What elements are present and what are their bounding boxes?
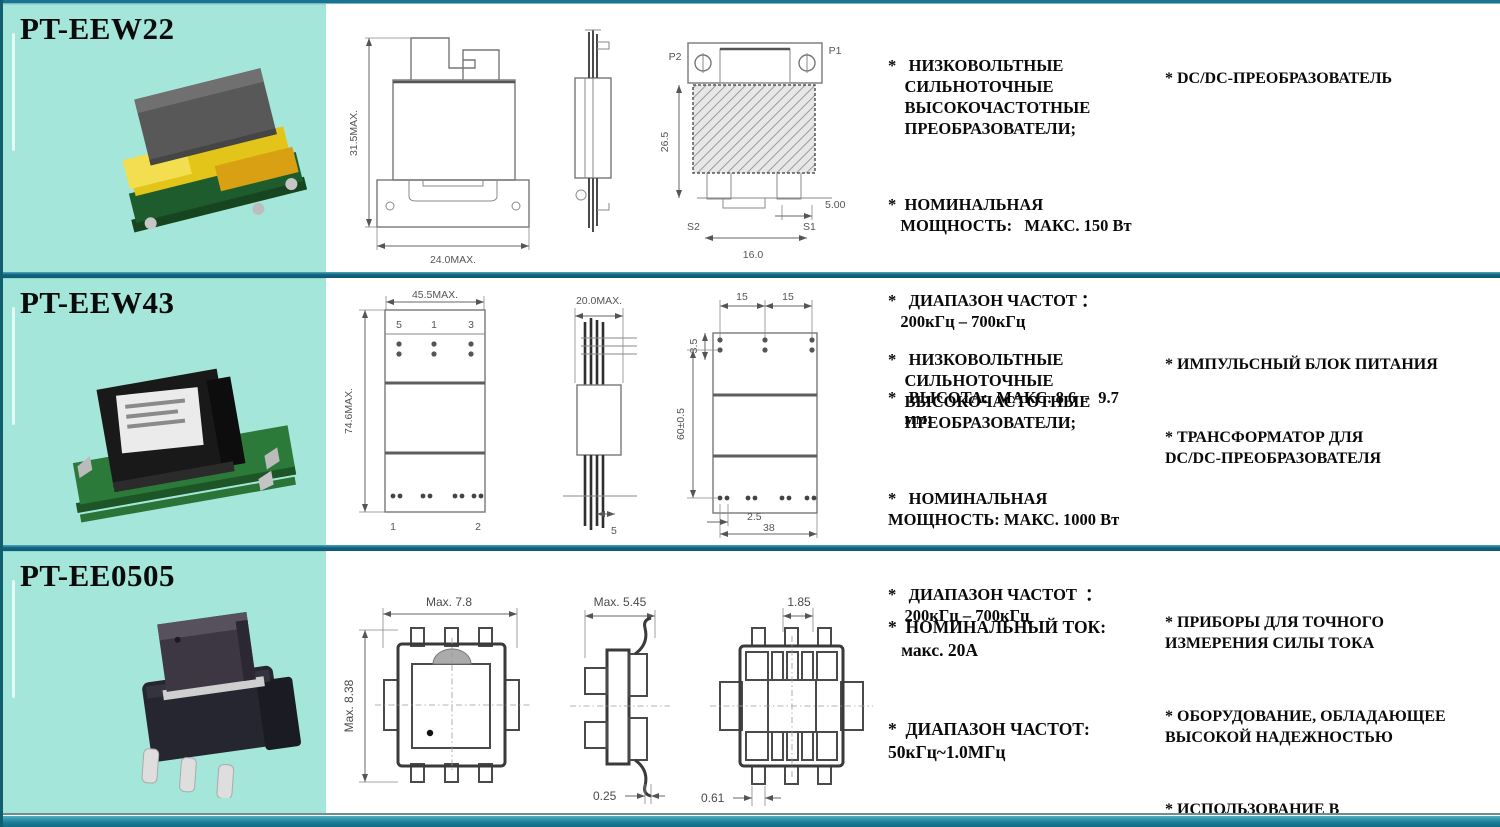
dim-label-offset: 3.5 xyxy=(688,339,700,354)
dim-label-side-width: Max. 5.45 xyxy=(594,595,647,609)
application-item: * ОБОРУДОВАНИЕ, ОБЛАДАЮЩЕЕ ВЫСОКОЙ НАДЕЖ… xyxy=(1165,706,1500,748)
product-title: PT-EEW43 xyxy=(20,285,174,321)
bottom-bar xyxy=(0,816,1500,827)
scan-artifact xyxy=(12,580,15,698)
dim-label-top-width: Max. 7.8 xyxy=(426,595,472,609)
page-left-edge xyxy=(0,0,3,827)
row-divider xyxy=(0,545,1500,551)
application-item: * ИМПУЛЬСНЫЙ БЛОК ПИТАНИЯ xyxy=(1165,354,1500,375)
dim-label-pad-width: 0.61 xyxy=(701,791,725,805)
application-item: * ПРИБОРЫ ДЛЯ ТОЧНОГО ИЗМЕРЕНИЯ СИЛЫ ТОК… xyxy=(1165,612,1500,654)
dim-label-s1: S1 xyxy=(803,221,816,233)
datasheet-page: PT-EEW22 xyxy=(0,0,1500,827)
side-view xyxy=(575,30,611,232)
dim-label-side-width: 20.0MAX. xyxy=(576,295,622,307)
dim-label-pad-pitch: 2.5 xyxy=(747,511,762,523)
dim-label-pitch: 5.00 xyxy=(825,199,846,211)
bottom-view xyxy=(710,628,873,784)
dim-label-top-width: 16.0 xyxy=(743,249,764,261)
application-list: * ПРИБОРЫ ДЛЯ ТОЧНОГО ИЗМЕРЕНИЯ СИЛЫ ТОК… xyxy=(1165,570,1500,827)
pin-label-p1: P1 xyxy=(829,45,842,57)
pin-number: 3 xyxy=(468,319,474,331)
front-view xyxy=(385,310,485,512)
bottom-line xyxy=(0,813,1500,815)
top-view xyxy=(688,43,832,208)
pin-number: 1 xyxy=(390,521,396,533)
spec-list: * НОМИНАЛЬНЫЙ ТОК: макс. 20А * ДИАПАЗОН … xyxy=(888,572,1173,827)
side-view xyxy=(563,318,637,530)
application-list: * ИМПУЛЬСНЫЙ БЛОК ПИТАНИЯ * ТРАНСФОРМАТО… xyxy=(1165,312,1500,520)
dim-label-top-height: 26.5 xyxy=(659,132,671,153)
application-item: * ТРАНСФОРМАТОР ДЛЯ DC/DC-ПРЕОБРАЗОВАТЕЛ… xyxy=(1165,427,1500,469)
dim-label-pad-pitch: 1.85 xyxy=(787,595,811,609)
technical-drawing-pt-ee0505: Max. 7.8 Max. 8.38 Max. 5.45 xyxy=(335,558,880,814)
front-view xyxy=(377,38,529,227)
spec-item: * НОМИНАЛЬНАЯ МОЩНОСТЬ: МАКС. 1000 Вт xyxy=(888,489,1173,531)
pin-label-p2: P2 xyxy=(669,51,682,63)
dim-label-front-height: 31.5MAX. xyxy=(348,110,360,156)
scan-artifact xyxy=(12,33,15,151)
dim-label-right-height: 60±0.5 xyxy=(675,408,687,440)
top-view xyxy=(375,628,531,782)
spec-item: * НИЗКОВОЛЬТНЫЕ СИЛЬНОТОЧНЫЕ ВЫСОКОЧАСТО… xyxy=(888,350,1173,434)
technical-drawing-pt-eew22: 31.5MAX. 24.0MAX. P2 xyxy=(335,20,880,268)
spec-item: * НОМИНАЛЬНАЯ МОЩНОСТЬ: МАКС. 150 Вт xyxy=(888,195,1173,237)
scan-artifact xyxy=(12,307,15,425)
dim-label-pitch-a: 15 xyxy=(736,291,748,303)
dim-label-left-height: 74.6MAX. xyxy=(343,388,355,434)
dim-label-pitch-b: 15 xyxy=(782,291,794,303)
right-view xyxy=(713,333,817,513)
dim-label-bottom-width: 38 xyxy=(763,522,775,534)
dim-label-top-width: 45.5MAX. xyxy=(412,289,458,301)
product-photo-pt-eew22 xyxy=(95,50,317,262)
dim-label-lead-thickness: 0.25 xyxy=(593,789,617,803)
spec-item: * НИЗКОВОЛЬТНЫЕ СИЛЬНОТОЧНЫЕ ВЫСОКОЧАСТО… xyxy=(888,56,1173,140)
product-title: PT-EE0505 xyxy=(20,558,175,594)
dim-label-s2: S2 xyxy=(687,221,700,233)
spec-item: * НОМИНАЛЬНЫЙ ТОК: макс. 20А xyxy=(888,616,1173,660)
dim-label-front-width: 24.0MAX. xyxy=(430,254,476,266)
top-border xyxy=(0,0,1500,4)
dim-label-left-height: Max. 8.38 xyxy=(342,679,356,732)
pin-number: 5 xyxy=(396,319,402,331)
dim-label-side-gap: 5 xyxy=(611,525,617,537)
application-list: * DC/DC-ПРЕОБРАЗОВАТЕЛЬ xyxy=(1165,26,1500,141)
technical-drawing-pt-eew43: 45.5MAX. 5 1 3 1 2 74. xyxy=(335,288,880,544)
spec-item: * ДИАПАЗОН ЧАСТОТ: 50кГц~1.0МГц xyxy=(888,718,1173,762)
row-divider xyxy=(0,272,1500,278)
pin-number: 1 xyxy=(431,319,437,331)
application-item: * DC/DC-ПРЕОБРАЗОВАТЕЛЬ xyxy=(1165,68,1500,89)
product-photo-pt-eew43 xyxy=(55,352,307,534)
pin-number: 2 xyxy=(475,521,481,533)
product-title: PT-EEW22 xyxy=(20,11,174,47)
product-photo-pt-ee0505 xyxy=(108,598,310,798)
